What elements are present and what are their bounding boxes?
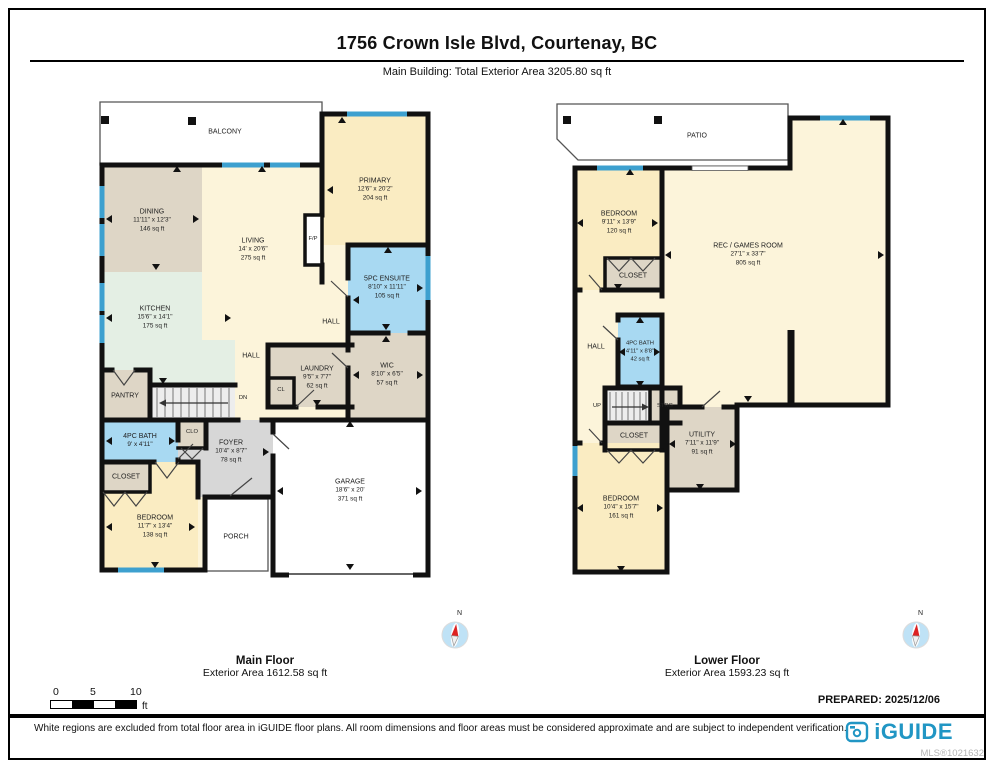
footer-divider <box>8 714 986 718</box>
room-label-primary: PRIMARY 12'6" x 20'2" 204 sq ft <box>357 177 392 204</box>
room-label-clo: CLO <box>186 429 198 437</box>
patio-outline <box>557 104 788 160</box>
scale-bar-segments <box>50 700 137 709</box>
room-label-foyer: FOYER 10'4" x 8'7" 78 sq ft <box>215 439 247 466</box>
patio-post <box>563 116 571 124</box>
room-label-ensuite: 5PC ENSUITE 8'10" x 11'11" 105 sq ft <box>364 275 410 302</box>
main-floor-caption: Main Floor Exterior Area 1612.58 sq ft <box>203 655 327 679</box>
room-label-bedroom-upper: BEDROOM 9'11" x 13'9" 120 sq ft <box>601 210 637 237</box>
room-label-bath-lower: 4PC BATH 4'11" x 8'8" 42 sq ft <box>626 340 654 363</box>
scale-unit: ft <box>142 701 148 712</box>
room-label-rec-room: REC / GAMES ROOM 27'1" x 33'7" 805 sq ft <box>713 242 783 269</box>
room-label-closet: CLOSET <box>112 472 140 481</box>
room-label-living: LIVING 14' x 20'6" 275 sq ft <box>238 237 267 264</box>
mls-number: MLS®1021632 <box>920 748 984 759</box>
iguide-logo: iGUIDE <box>845 719 953 745</box>
stairs-dn-label: DN <box>239 395 247 403</box>
room-label-bedroom-lower: BEDROOM 10'4" x 15'7" 161 sq ft <box>603 495 639 522</box>
balcony-post <box>188 117 196 125</box>
room-label-cl: CL <box>277 387 284 395</box>
room-label-wic: WIC 8'10" x 6'5" 57 sq ft <box>371 362 403 389</box>
room-label-fireplace: F/P <box>308 236 317 244</box>
strg-label: STRG <box>657 403 673 411</box>
room-label-kitchen: KITCHEN 15'6" x 14'1" 175 sq ft <box>137 305 172 332</box>
room-label-porch: PORCH <box>223 532 248 541</box>
room-label-hall-mid: HALL <box>242 351 260 360</box>
room-label-bedroom: BEDROOM 11'7" x 13'4" 138 sq ft <box>137 514 173 541</box>
compass-icon: N <box>899 610 933 660</box>
room-label-bath: 4PC BATH 9' x 4'11" <box>123 432 157 450</box>
scale-tick-0: 0 <box>53 686 59 698</box>
room-label-garage: GARAGE 18'6" x 20' 371 sq ft <box>335 478 365 505</box>
room-label-dining: DINING 11'11" x 12'3" 146 sq ft <box>133 208 171 235</box>
patio-post <box>654 116 662 124</box>
stairs-up-label: UP <box>593 403 601 411</box>
disclaimer-text: White regions are excluded from total fl… <box>34 723 847 734</box>
room-label-hall-upper: HALL <box>322 317 340 326</box>
scale-tick-5: 5 <box>90 686 96 698</box>
room-label-closet-lower: CLOSET <box>620 431 648 440</box>
iguide-logo-text: iGUIDE <box>874 719 953 745</box>
room-label-closet-upper: CLOSET <box>619 271 647 280</box>
room-label-pantry: PANTRY <box>111 391 139 400</box>
balcony-post <box>101 116 109 124</box>
room-label-patio: PATIO <box>687 131 707 140</box>
lower-floor-caption: Lower Floor Exterior Area 1593.23 sq ft <box>665 655 789 679</box>
scale-tick-10: 10 <box>130 686 142 698</box>
iguide-logo-icon <box>845 720 869 744</box>
garage-door <box>289 571 413 579</box>
room-label-laundry: LAUNDRY 9'5" x 7'7" 62 sq ft <box>300 365 333 392</box>
room-label-balcony: BALCONY <box>208 127 241 136</box>
prepared-date: PREPARED: 2025/12/06 <box>818 694 940 706</box>
floorplan-page: 1756 Crown Isle Blvd, Courtenay, BC Main… <box>0 0 994 768</box>
room-label-hall-lower: HALL <box>587 342 605 351</box>
room-label-utility: UTILITY 7'11" x 11'9" 91 sq ft <box>685 431 719 458</box>
patio-door <box>692 166 748 171</box>
floorplan-drawing <box>0 0 994 768</box>
compass-icon: N <box>438 610 472 660</box>
scale-bar: 0 5 10 ft <box>50 686 170 714</box>
main-floor-plan <box>100 102 431 579</box>
